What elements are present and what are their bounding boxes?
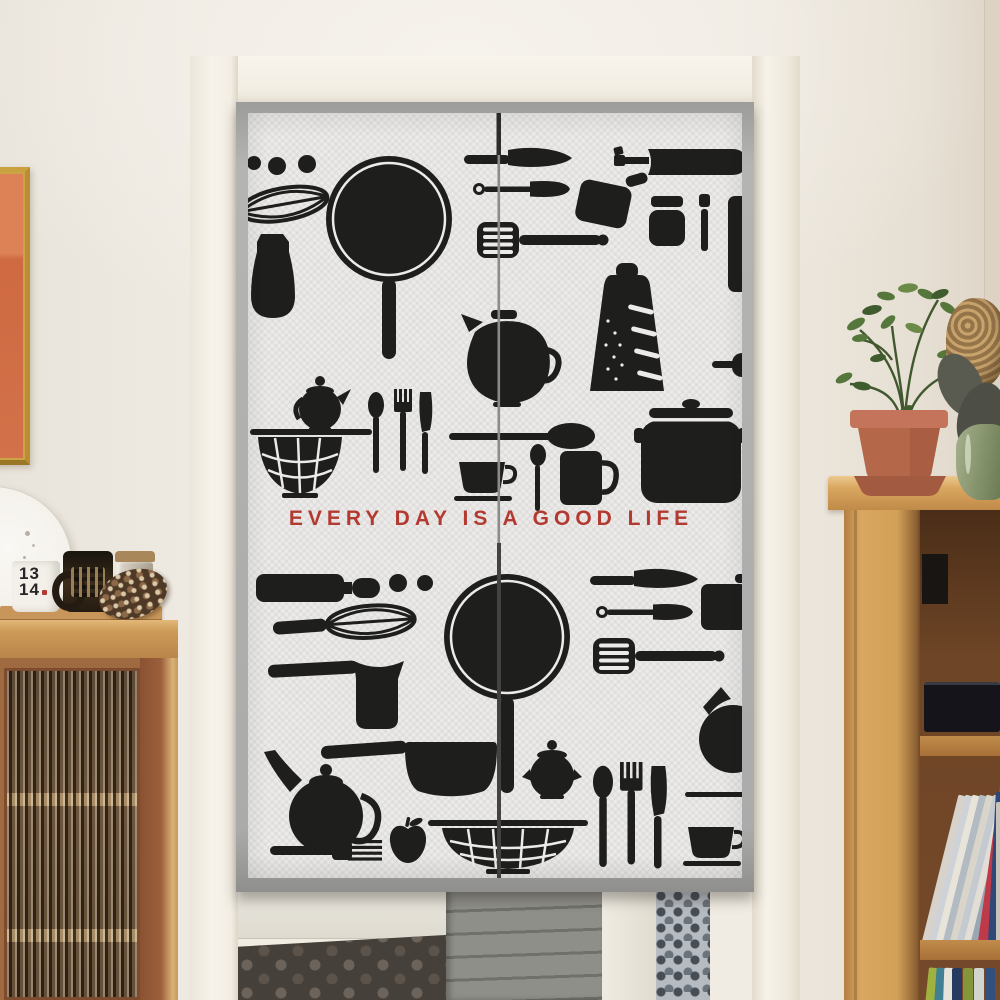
bookshelf-left-stile (844, 510, 920, 1000)
motif-cezve (268, 660, 404, 729)
framed-art (0, 174, 23, 458)
motif-sugar-pot (522, 740, 582, 799)
kitchen-slat-panel (446, 890, 602, 1000)
mug-label-line2: 14 (19, 580, 40, 599)
motif-lidded-pot (634, 399, 742, 503)
motif-teaspoon (530, 444, 546, 511)
motif-grater (590, 263, 664, 391)
curtain-print: EVERY DAY IS A GOOD LIFE (248, 113, 742, 878)
bottom-books (922, 966, 1000, 1000)
kitchen-white-column (602, 890, 656, 1000)
motif-colander-bottom (428, 820, 588, 874)
room-scene: EVERY DAY IS A GOOD LIFE (0, 0, 1000, 1000)
curtain-slogan: EVERY DAY IS A GOOD LIFE (289, 507, 693, 530)
motif-jar (649, 196, 685, 246)
motif-apple (390, 816, 426, 863)
fluted-glass-texture (7, 671, 137, 997)
book-spine (963, 968, 973, 1000)
motif-dots-bottom (389, 574, 433, 592)
motif-teacup-bottom (683, 827, 742, 866)
kitchen-door-jamb (710, 890, 752, 1000)
motif-whisk-bottom (272, 603, 416, 645)
motif-slotted-turner-top (477, 222, 609, 258)
plate-script-marks (25, 531, 30, 536)
green-vase (956, 424, 1000, 500)
book-spine (996, 802, 1000, 942)
motif-knife-top (464, 148, 572, 167)
picture-frame (0, 167, 30, 465)
motif-whisk-top (248, 181, 330, 237)
leaning-books (922, 762, 1000, 942)
mug-red-mark (42, 590, 47, 595)
door-frame-top (190, 56, 800, 106)
cabinet-top-board (0, 620, 178, 658)
bookshelf-shelf (920, 736, 1000, 756)
motif-wine-bottle (613, 146, 742, 175)
kitchen-doorway-view (238, 890, 752, 1000)
book-spine (985, 968, 995, 1000)
display-cabinet[interactable] (0, 620, 178, 1000)
noren-curtain[interactable]: EVERY DAY IS A GOOD LIFE (236, 102, 754, 892)
motif-pitcher-bottom (699, 687, 742, 773)
speaker (924, 682, 1000, 732)
motif-coffee-pot (461, 310, 559, 407)
motif-pitcher-top (251, 234, 295, 318)
terracotta-pot (850, 410, 948, 496)
motif-slotted-turner-bottom (593, 638, 725, 674)
motif-colander-top (250, 429, 372, 498)
motif-rolling-pin (256, 574, 380, 602)
door-frame-left (190, 56, 238, 1000)
book-spine (952, 968, 962, 1000)
bookshelf-shelf (920, 940, 1000, 960)
motif-teapot-bottom (264, 750, 378, 855)
motif-long-spoon (449, 423, 595, 449)
motif-shaker (699, 194, 710, 251)
bookshelf (828, 476, 1000, 1000)
kitchen-pebble-tiles (656, 890, 710, 1000)
motif-knife-bottom (590, 569, 698, 588)
motif-flipper-top (574, 159, 651, 233)
book-spine (974, 968, 984, 1000)
motif-cutting-board (728, 196, 742, 292)
motif-mug (560, 451, 616, 505)
motif-dots-top (248, 155, 316, 175)
cabinet-side-stile (140, 658, 178, 1000)
motif-teapot-top (296, 376, 351, 431)
motif-cutlery-bottom (593, 762, 667, 869)
jar-wooden-lid (115, 551, 155, 562)
motif-spatula-bottom (598, 604, 694, 620)
cabinet-glass-door[interactable] (4, 668, 140, 1000)
motif-serving-board (712, 353, 742, 377)
bookshelf-interior (920, 510, 1000, 1000)
motif-frying-pan-top (326, 156, 452, 359)
motif-flipper-bottom (701, 574, 742, 630)
curtain-fabric: EVERY DAY IS A GOOD LIFE (248, 113, 742, 878)
door-frame-right (752, 56, 800, 1000)
black-box (922, 554, 948, 604)
motif-chopstick (685, 792, 742, 797)
motif-teacup-top (454, 462, 515, 501)
motif-spatula-top (475, 181, 571, 197)
motif-cutlery-top (368, 389, 432, 474)
